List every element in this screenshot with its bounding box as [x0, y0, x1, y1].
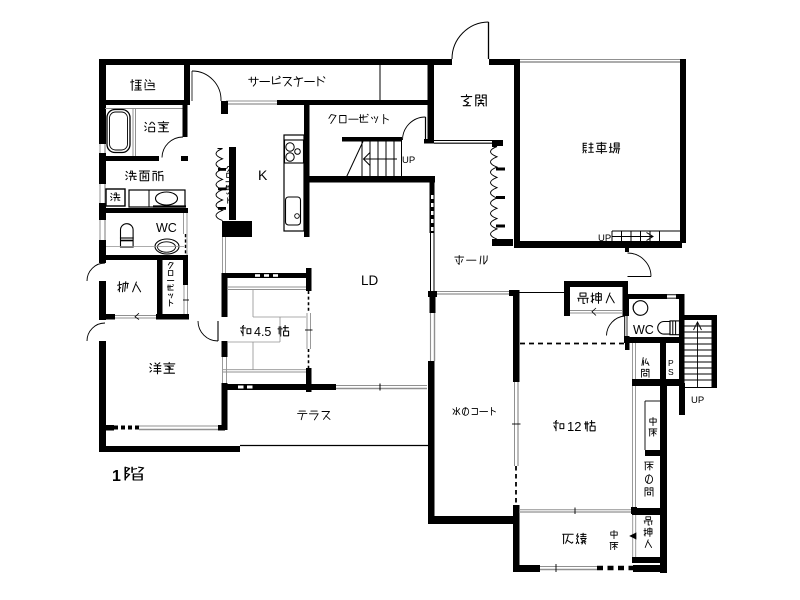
svg-text:LD: LD [361, 273, 379, 288]
svg-text:UP: UP [691, 395, 704, 406]
svg-text:WC: WC [633, 323, 654, 337]
svg-text:4.5: 4.5 [254, 325, 271, 339]
svg-text:S: S [668, 367, 674, 377]
svg-text:1: 1 [112, 468, 121, 485]
svg-text:WC: WC [156, 221, 177, 235]
svg-text:UP: UP [402, 155, 415, 166]
svg-text:K: K [258, 167, 268, 183]
svg-text:12: 12 [567, 419, 581, 434]
svg-text:UP: UP [598, 233, 611, 244]
